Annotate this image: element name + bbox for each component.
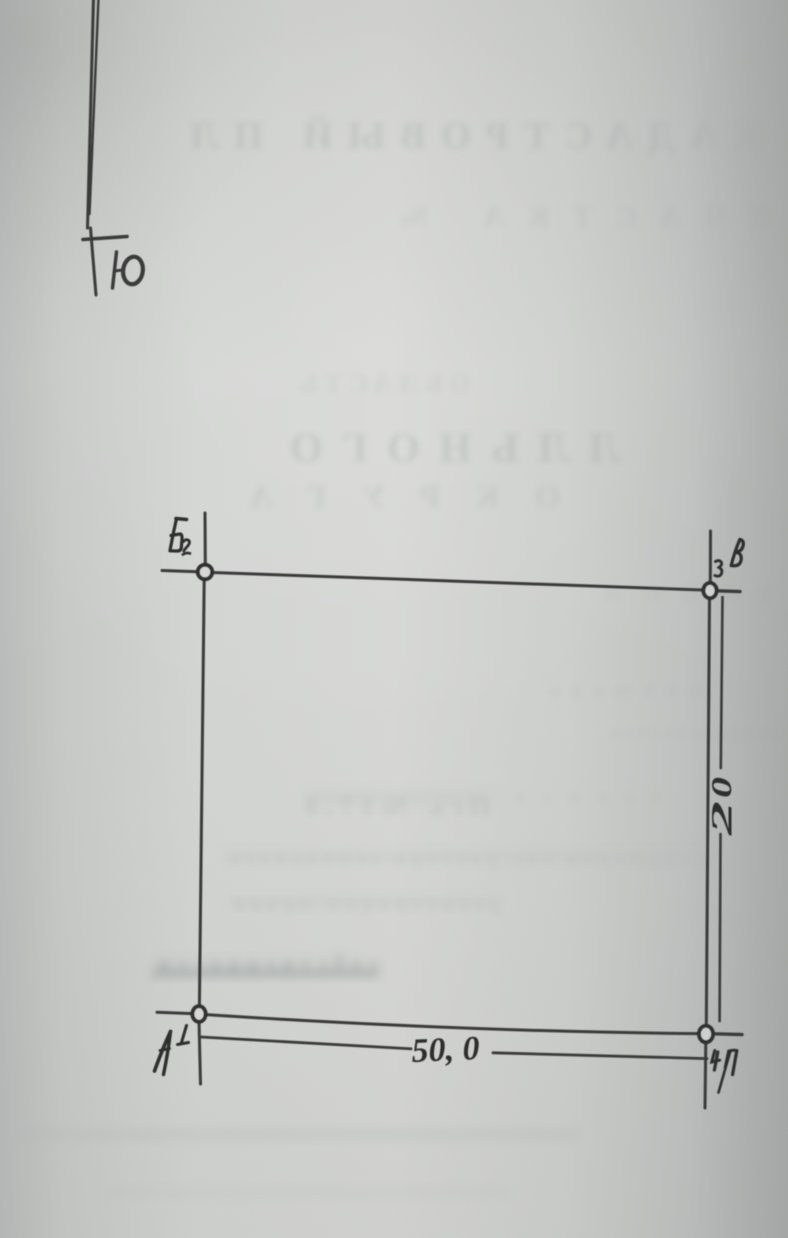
svg-text:0: 0 xyxy=(707,777,738,798)
svg-text:УЧАСТКА №: УЧАСТКА № xyxy=(400,202,770,233)
svg-text:2: 2 xyxy=(706,801,739,837)
svg-text:50, 0: 50, 0 xyxy=(411,1030,481,1070)
